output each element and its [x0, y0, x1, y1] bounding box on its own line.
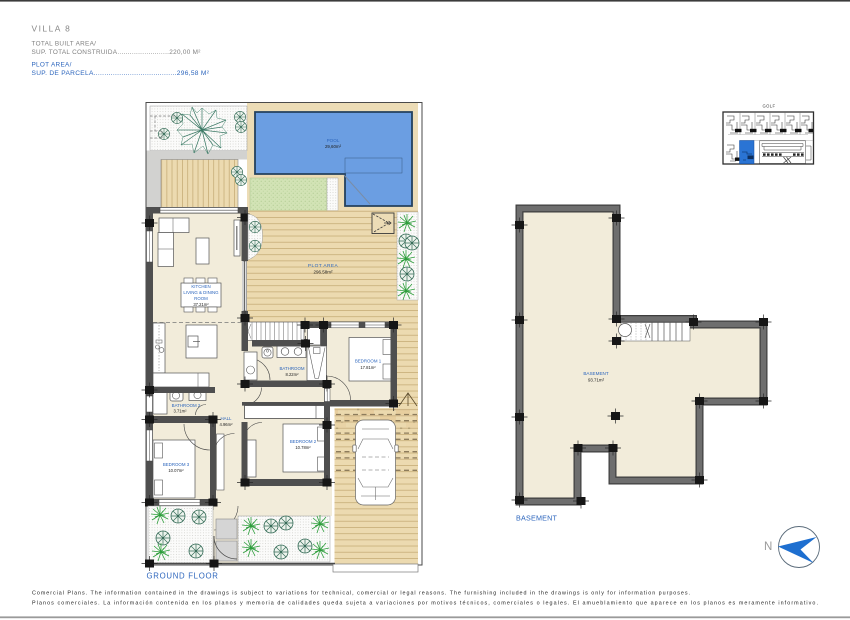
svg-text:BEDROOM 2: BEDROOM 2 [290, 439, 317, 444]
svg-text:POOL: POOL [327, 138, 340, 143]
svg-text:296.58m²: 296.58m² [313, 270, 333, 275]
svg-text:29,60m²: 29,60m² [325, 144, 342, 149]
svg-text:10.07m²: 10.07m² [168, 468, 184, 473]
svg-text:8.22m²: 8.22m² [285, 372, 299, 377]
svg-text:GOLF: GOLF [762, 104, 775, 109]
svg-text:GROUND FLOOR: GROUND FLOOR [147, 572, 219, 581]
svg-text:Comercial Plans. The informati: Comercial Plans. The information contain… [32, 591, 690, 597]
svg-text:10.78m²: 10.78m² [295, 445, 311, 450]
svg-text:BATHROOM: BATHROOM [279, 366, 304, 371]
svg-text:VILLA 8: VILLA 8 [32, 24, 72, 34]
svg-text:KITCHEN: KITCHEN [191, 284, 210, 289]
svg-text:SUP. DE PARCELA...............: SUP. DE PARCELA.........................… [32, 70, 210, 77]
svg-text:Planos comerciales. La informa: Planos comerciales. La información conte… [32, 601, 818, 607]
svg-text:ROOM: ROOM [194, 296, 208, 301]
svg-text:BASEMENT: BASEMENT [516, 514, 558, 523]
svg-text:3.71m²: 3.71m² [173, 409, 187, 414]
svg-text:N: N [764, 541, 772, 553]
svg-text:4.96m²: 4.96m² [219, 422, 233, 427]
svg-text:BEDROOM 1: BEDROOM 1 [355, 359, 382, 364]
svg-text:SUP. TOTAL CONSTRUIDA.........: SUP. TOTAL CONSTRUIDA...................… [32, 49, 201, 56]
svg-text:37.21m²: 37.21m² [193, 302, 209, 307]
svg-text:LIVING & DINING: LIVING & DINING [183, 290, 219, 295]
svg-text:93.71m²: 93.71m² [588, 378, 605, 383]
svg-text:BEDROOM 3: BEDROOM 3 [163, 462, 190, 467]
svg-text:BATHROOM 2: BATHROOM 2 [172, 403, 201, 408]
svg-text:BASEMENT: BASEMENT [583, 371, 608, 376]
svg-text:PLOT AREA/: PLOT AREA/ [32, 62, 72, 69]
svg-text:PLOT AREA: PLOT AREA [308, 263, 339, 269]
svg-text:17.81m²: 17.81m² [360, 365, 376, 370]
svg-text:HALL: HALL [221, 416, 233, 421]
svg-text:TOTAL BUILT AREA/: TOTAL BUILT AREA/ [32, 41, 97, 48]
